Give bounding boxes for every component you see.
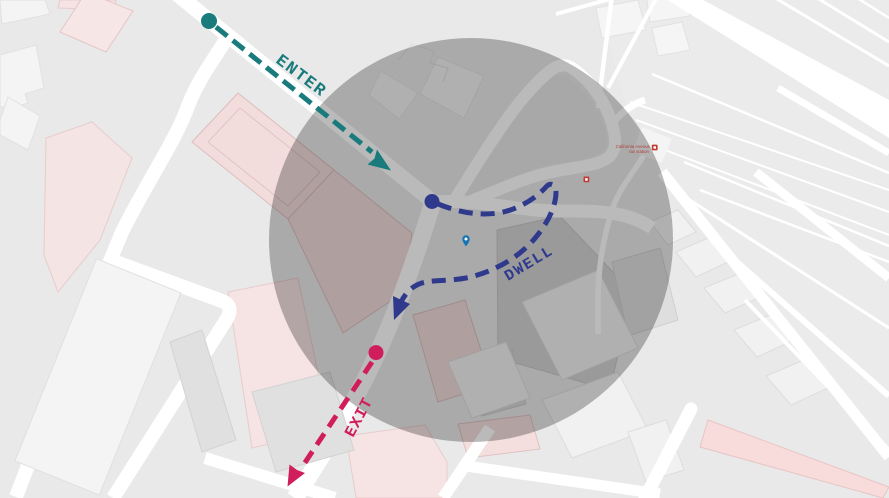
svg-text:rail station: rail station [629, 149, 650, 154]
